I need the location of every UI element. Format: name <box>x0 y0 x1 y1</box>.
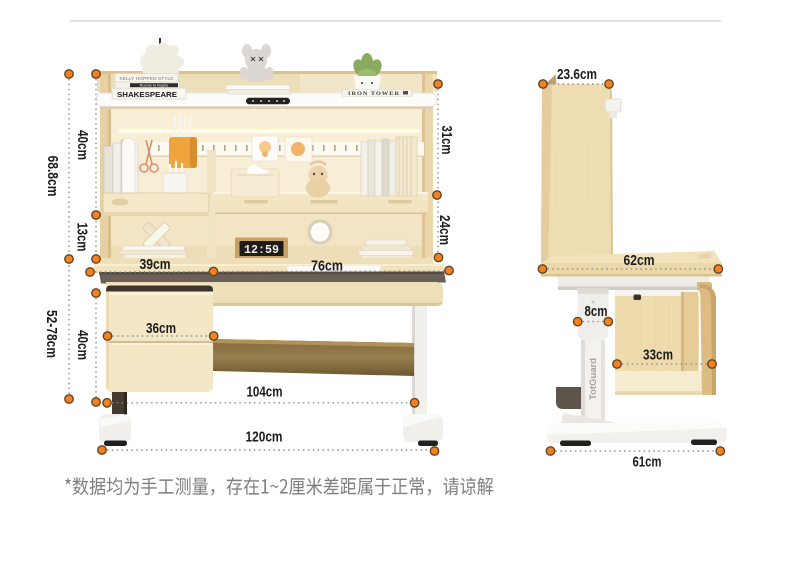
svg-text:23.6cm: 23.6cm <box>557 66 597 83</box>
svg-text:76cm: 76cm <box>311 258 343 275</box>
svg-text:IRON TOWER: IRON TOWER <box>348 92 400 97</box>
svg-text:SHAKESPEARE: SHAKESPEARE <box>117 90 177 99</box>
svg-text:36cm: 36cm <box>146 320 176 337</box>
svg-text:24cm: 24cm <box>436 215 453 245</box>
svg-text:33cm: 33cm <box>643 347 673 364</box>
svg-text:8cm: 8cm <box>585 303 608 320</box>
svg-text:31cm: 31cm <box>438 126 455 155</box>
svg-text:13cm: 13cm <box>74 223 91 252</box>
svg-text:68.8cm: 68.8cm <box>44 156 61 197</box>
svg-text:KELLY HOPPEN STYLE: KELLY HOPPEN STYLE <box>120 76 174 81</box>
svg-text:39cm: 39cm <box>140 256 171 273</box>
svg-text:104cm: 104cm <box>247 384 283 401</box>
svg-text:52-78cm: 52-78cm <box>43 310 60 358</box>
svg-text:40cm: 40cm <box>74 330 91 360</box>
svg-text:12:59: 12:59 <box>244 244 279 257</box>
svg-text:40cm: 40cm <box>74 130 91 160</box>
svg-text:61cm: 61cm <box>633 454 662 471</box>
svg-text:62cm: 62cm <box>624 252 655 269</box>
svg-text:Rooms to Inspire: Rooms to Inspire <box>140 84 169 88</box>
svg-text:120cm: 120cm <box>246 429 283 446</box>
svg-text:TotGuard: TotGuard <box>588 358 599 400</box>
